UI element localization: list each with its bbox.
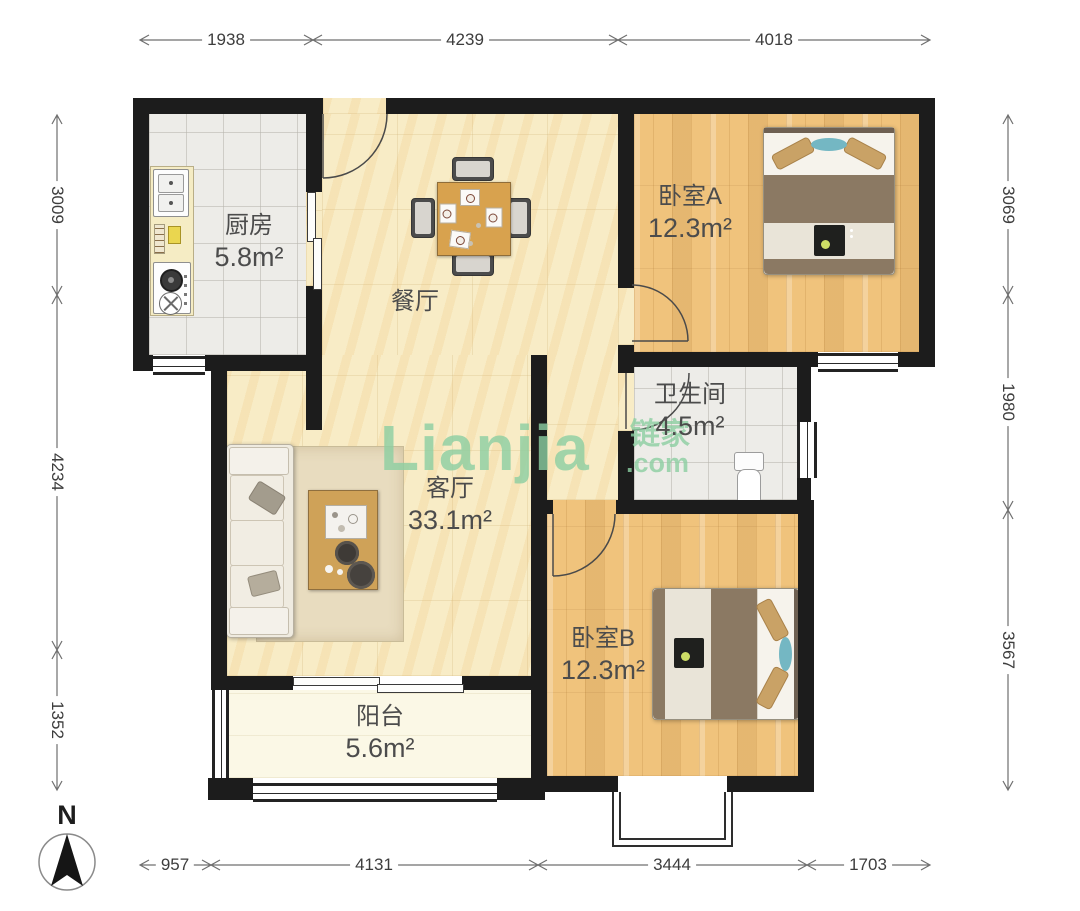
room-label-balcony: 阳台 5.6m² (345, 703, 414, 764)
dim-top-3: 4018 (750, 30, 798, 50)
bedroom-a-door-arc (632, 285, 688, 341)
bedroom-b-door-arc (553, 514, 615, 576)
dim-left-3: 1352 (47, 696, 67, 744)
dim-bottom-2: 4131 (350, 855, 398, 875)
dim-right-3: 3567 (998, 626, 1018, 674)
floor-plan: Lianjia 链家 .com 厨房 5.8m² 餐厅 卧室A 12.3m² 卫… (0, 0, 1080, 911)
compass-north-label: N (57, 800, 77, 831)
dim-right-2: 1980 (998, 378, 1018, 426)
bay-window (613, 792, 732, 846)
room-label-bedroom-a: 卧室A 12.3m² (648, 183, 732, 244)
room-label-dining: 餐厅 (391, 288, 439, 317)
room-label-kitchen: 厨房 5.8m² (214, 212, 283, 273)
north-arrow-icon (39, 834, 95, 890)
dim-left-1: 3009 (47, 181, 67, 229)
room-label-living: 客厅 33.1m² (408, 475, 492, 536)
door-swing-arcs (323, 114, 689, 576)
dim-top-2: 4239 (441, 30, 489, 50)
entrance-door-arc (323, 114, 387, 178)
dim-left-2: 4234 (47, 448, 67, 496)
plan-overlay (0, 0, 1080, 911)
dim-right-1: 3069 (998, 181, 1018, 229)
dim-bottom-4: 1703 (844, 855, 892, 875)
dim-bottom-1: 957 (156, 855, 194, 875)
room-label-bedroom-b: 卧室B 12.3m² (561, 625, 645, 686)
dim-bottom-3: 3444 (648, 855, 696, 875)
room-label-bathroom: 卫生间 4.5m² (654, 381, 726, 442)
dimension-lines (52, 35, 1013, 870)
dim-top-1: 1938 (202, 30, 250, 50)
